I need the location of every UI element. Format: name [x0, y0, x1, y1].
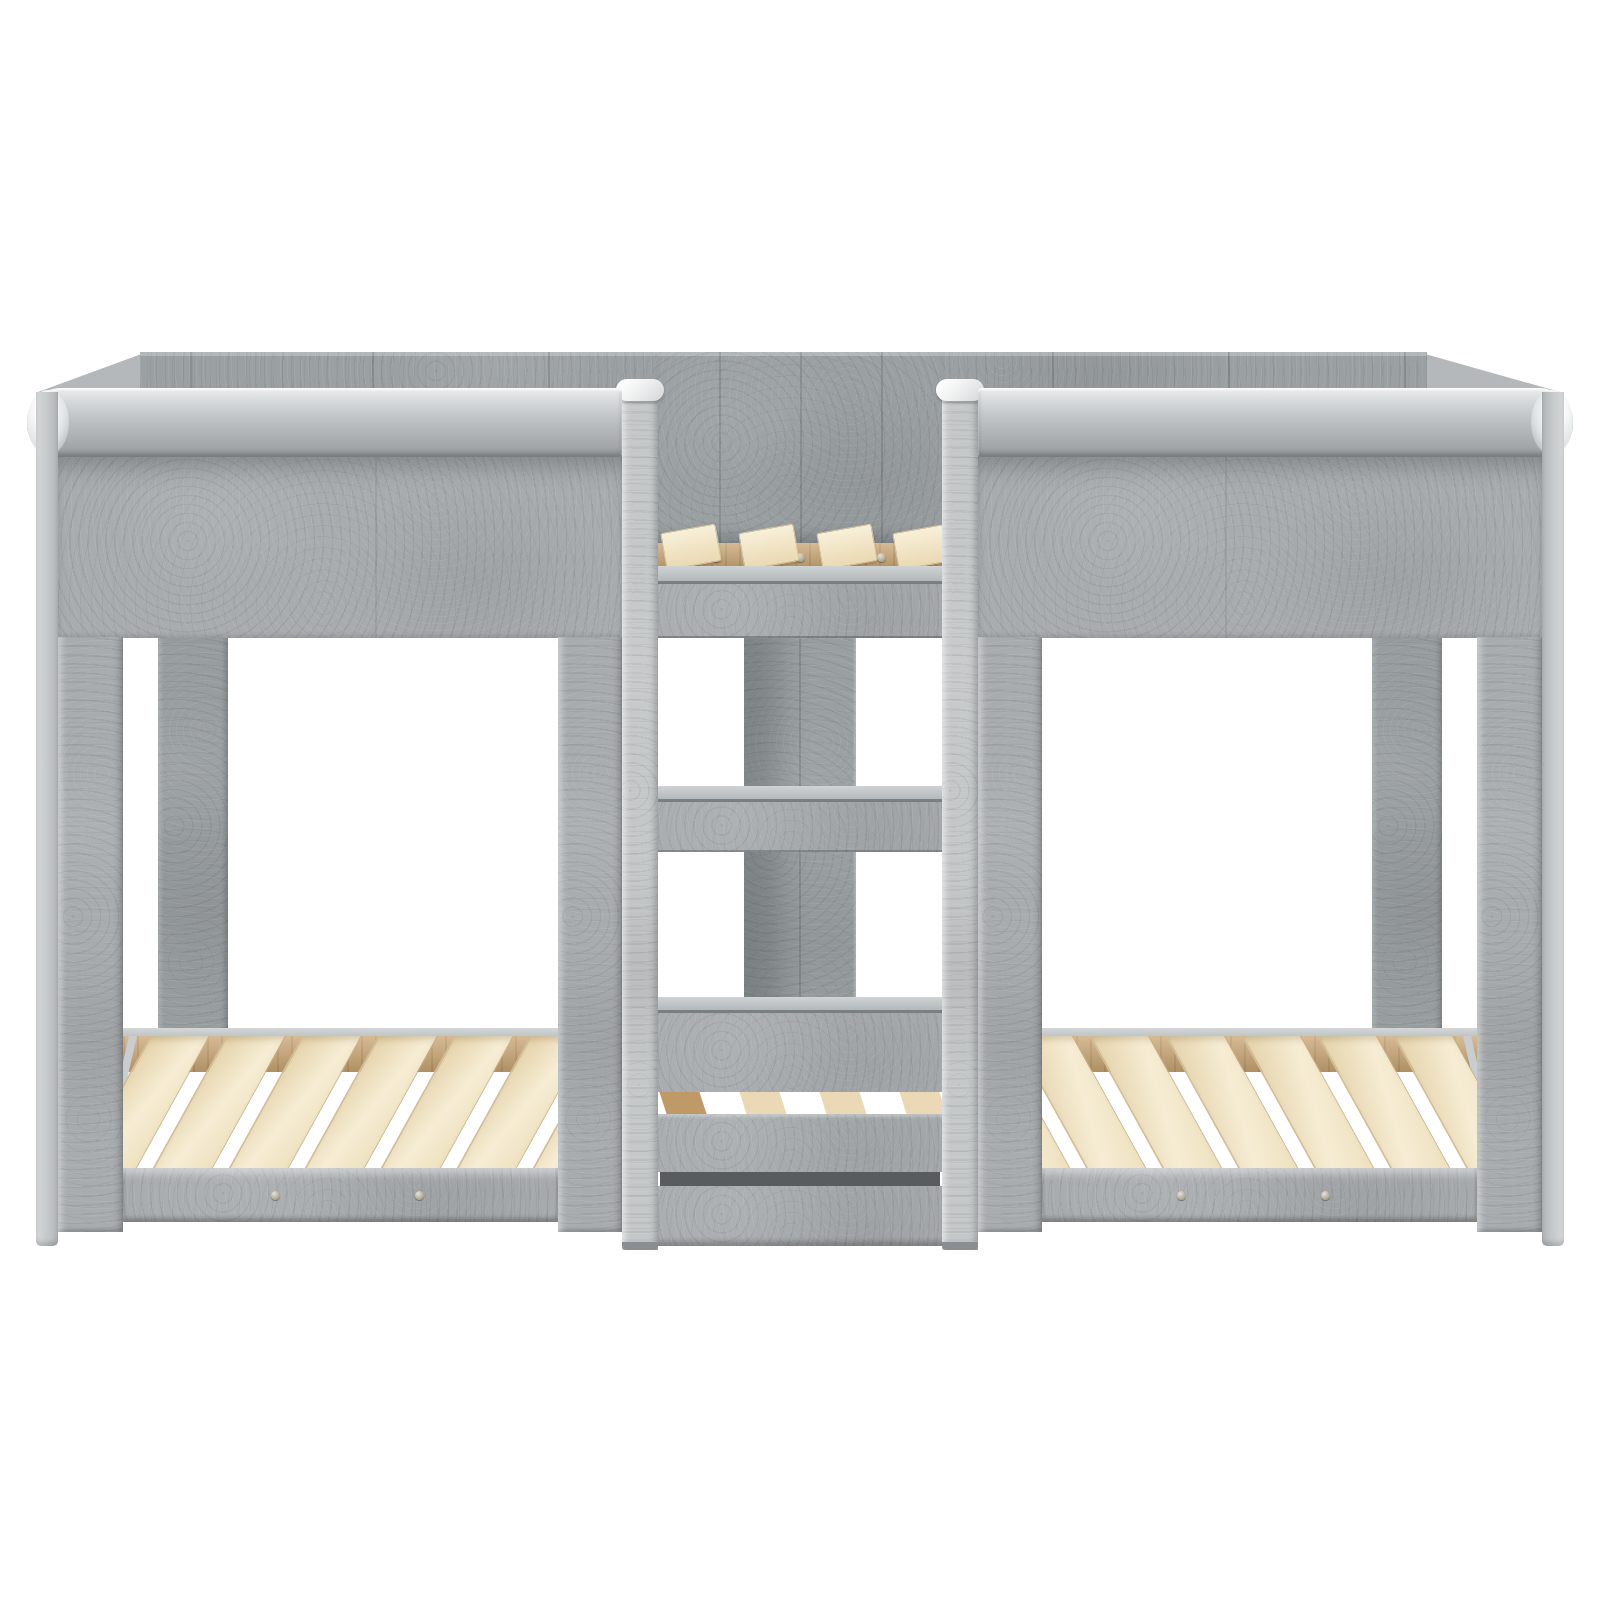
upper-panel-right [978, 455, 1542, 638]
upper-panel-left [58, 455, 622, 638]
back-wall-plank-seam [190, 352, 192, 392]
back-wall-plank-seam [719, 352, 721, 545]
bed-front-rail-left [123, 1168, 558, 1222]
side-panel-left [36, 392, 58, 1246]
ladder-post-foot-right [942, 1242, 978, 1250]
ladder-post-foot-left [622, 1242, 658, 1250]
bed-front-rail-right [1042, 1168, 1477, 1222]
ladder-post-cap-right [936, 379, 984, 401]
ladder-post-cap-left [616, 379, 664, 401]
ladder-slit-segment [819, 1092, 866, 1114]
bed-slats-right [978, 1028, 1477, 1170]
ladder-mid-band [655, 1114, 945, 1172]
bed-base-left [123, 1028, 622, 1170]
ladder-rung-3-lip [655, 997, 945, 1013]
side-panel-top-right [1427, 352, 1560, 392]
front-leg-right-outer [1477, 637, 1542, 1232]
product-photo-canvas [0, 0, 1600, 1600]
upper-panel-seam [375, 455, 377, 638]
screw [1177, 1191, 1186, 1200]
front-leg-left-outer [58, 637, 123, 1232]
side-panel-right [1542, 392, 1564, 1246]
ladder-top-slat [738, 523, 800, 570]
ladder-top-slat [816, 523, 878, 570]
ladder-top-slats [655, 522, 945, 572]
upper-panel-seam [1225, 455, 1227, 638]
screw [415, 1191, 424, 1200]
bed-base-right [978, 1028, 1477, 1170]
guard-rail-left [27, 388, 622, 457]
back-leg-left [158, 638, 228, 1038]
bed-slats-left [123, 1028, 622, 1170]
ladder-post-right [942, 383, 978, 1250]
ladder-back-wall [655, 352, 945, 545]
ladder-rung-2-lip [655, 786, 945, 802]
back-wall-plank-seam [1404, 352, 1406, 392]
ladder-rung-2-face [655, 802, 945, 852]
back-wall-plank-seam [1228, 352, 1230, 392]
guard-rail-right [978, 388, 1573, 457]
back-wall-plank-seam [372, 352, 374, 392]
ladder-rung-1-lip [655, 566, 945, 584]
ladder-slit-segment [899, 1092, 945, 1114]
back-wall-plank-seam [1052, 352, 1054, 392]
ladder-slat-slit [655, 1092, 945, 1114]
front-leg-left-inner [558, 637, 622, 1232]
ladder-rung-3-face [655, 1013, 945, 1092]
back-wall-plank-seam [800, 352, 802, 545]
ladder-rung-1-face [655, 584, 945, 638]
back-wall-plank-seam [548, 352, 550, 392]
ladder-slit-segment [739, 1092, 786, 1114]
screw [1321, 1191, 1330, 1200]
front-leg-right-inner [978, 637, 1042, 1232]
screw [271, 1191, 280, 1200]
ladder-post-left [622, 383, 658, 1250]
side-panel-top-left [38, 352, 140, 392]
ladder-top-slat [660, 523, 722, 570]
ladder-shadow-slot [660, 1172, 940, 1186]
ladder-bottom-band [655, 1186, 945, 1246]
ladder-slit-segment [659, 1092, 706, 1114]
back-wall-plank-seam [881, 352, 883, 545]
back-leg-right [1372, 638, 1442, 1038]
